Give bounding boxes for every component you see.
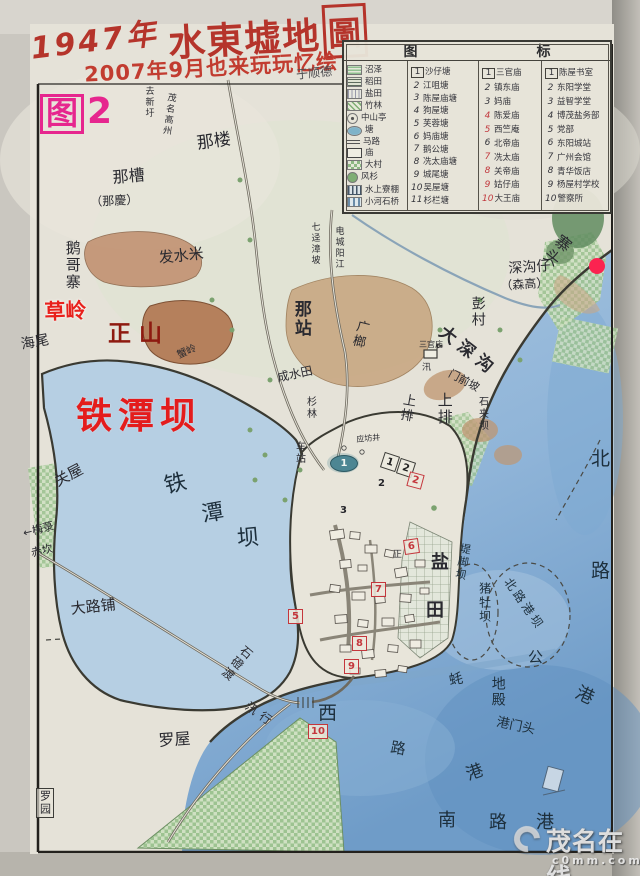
legend-item: 沼泽 xyxy=(347,65,406,75)
legend-item-number: 1 xyxy=(411,67,424,78)
legend-item-number: 5 xyxy=(482,126,493,135)
map-label: （那慶） xyxy=(90,193,139,208)
legend-item-label: 稻田 xyxy=(365,78,382,87)
map-label: 铁潭坝 xyxy=(76,398,202,436)
legend-header-left: 图 xyxy=(404,41,418,61)
legend-item-label: 城尾塘 xyxy=(423,171,449,180)
red-dot-marker xyxy=(589,258,605,274)
map-marker-red-7: 7 xyxy=(371,582,386,597)
map-label: 鹅哥寨 xyxy=(64,240,80,291)
legend-header-right: 标 xyxy=(537,41,551,61)
legend-item: 4博茂盐务部 xyxy=(545,112,609,121)
pavilion-symbol-icon xyxy=(347,113,358,124)
legend-item: 5芙蓉塘 xyxy=(411,120,477,129)
legend-item: 8关帝庙 xyxy=(482,167,540,176)
map-label: 那站 xyxy=(291,300,309,338)
legend-item: 3益智学堂 xyxy=(545,98,609,107)
map-label: 正山 xyxy=(108,322,170,346)
legend-item: 塘 xyxy=(347,126,406,136)
legend-item-label: 盐田 xyxy=(365,90,382,99)
legend-item-number: 6 xyxy=(482,139,493,148)
legend-item-number: 8 xyxy=(545,167,556,176)
legend-item-number: 7 xyxy=(482,153,493,162)
map-label: 南 xyxy=(438,812,456,831)
legend-item: 9城尾塘 xyxy=(411,171,477,180)
legend-item-label: 中山亭 xyxy=(361,114,387,123)
legend-item-label: 吴屋塘 xyxy=(424,184,450,193)
legend-item: 1陈屋书室 xyxy=(545,68,609,79)
legend-item-label: 西竺庵 xyxy=(494,126,520,135)
legend-item-number: 2 xyxy=(411,82,422,91)
legend-item: 4狗屋塘 xyxy=(411,107,477,116)
stilt-symbol-icon xyxy=(347,185,362,195)
legend-item-label: 博茂盐务部 xyxy=(557,112,600,121)
salt-symbol-icon xyxy=(347,89,362,99)
legend-item-number: 4 xyxy=(545,112,556,121)
legend-item: 1沙仔塘 xyxy=(411,67,477,78)
legend-item-label: 狗屋塘 xyxy=(423,107,449,116)
legend-item-label: 三官庙 xyxy=(496,69,522,78)
legend-item-number: 3 xyxy=(411,94,422,103)
legend-item: 盐田 xyxy=(347,89,406,99)
legend-item-number: 7 xyxy=(411,145,422,154)
map-label: 上排 xyxy=(436,392,452,426)
legend-item-label: 东阳学堂 xyxy=(557,84,591,93)
map-label: 路 xyxy=(489,814,507,833)
legend-item-number: 2 xyxy=(482,84,493,93)
legend-item-label: 塘 xyxy=(365,126,374,135)
legend-item-label: 镇东庙 xyxy=(494,84,520,93)
legend-ponds-column: 1沙仔塘2江咀塘3陈屋庙塘4狗屋塘5芙蓉塘6妈庙塘7鹅公塘8冼太庙塘9城尾塘10… xyxy=(407,61,478,211)
legend-item-label: 马路 xyxy=(363,138,380,147)
legend-item: 3妈庙 xyxy=(482,98,540,107)
legend-item-label: 东阳城站 xyxy=(557,140,591,149)
legend-item-number: 8 xyxy=(411,158,422,167)
legend-item-label: 风杉 xyxy=(361,173,378,182)
legend-item-label: 陈爱庙 xyxy=(494,112,520,121)
legend-item: 9杨屋村学校 xyxy=(545,181,609,190)
legend-item: 2镇东庙 xyxy=(482,84,540,93)
temple-symbol-icon xyxy=(347,148,362,158)
map-marker-pond1-1: 1 xyxy=(330,455,358,472)
map-label: 深沟仔 xyxy=(508,259,551,277)
legend-item-label: 沼泽 xyxy=(365,66,382,75)
map-label: 草岭 xyxy=(44,300,87,323)
legend-item-label: 冼太庙塘 xyxy=(423,158,457,167)
map-marker-plain-2: 2 xyxy=(378,478,385,489)
legend-symbols-column: 沼泽稻田盐田竹林中山亭塘马路庙大村风杉水上寮棚小河石桥 xyxy=(344,61,407,211)
legend-item-label: 杉栏塘 xyxy=(424,197,450,206)
map-label: 公 xyxy=(528,650,543,666)
map-marker-red-8: 8 xyxy=(352,636,367,651)
legend-item-label: 妈庙塘 xyxy=(423,133,449,142)
legend-item-number: 3 xyxy=(545,98,556,107)
marsh-symbol-icon xyxy=(347,65,362,75)
map-label: 车站 xyxy=(293,441,304,465)
map-label: 罗屋 xyxy=(158,731,191,750)
paddy-symbol-icon xyxy=(347,77,362,87)
map-label: 盐 xyxy=(431,554,449,573)
figure-number: 2 xyxy=(87,94,112,130)
figure-label: 图 xyxy=(40,94,84,134)
legend-item: 中山亭 xyxy=(347,113,406,124)
legend-item-number: 1 xyxy=(545,68,558,79)
legend-item-label: 关帝庙 xyxy=(494,168,520,177)
legend-item: 5党部 xyxy=(545,126,609,135)
legend-item: 水上寮棚 xyxy=(347,185,406,195)
legend-item: 1三官庙 xyxy=(482,68,540,79)
bridge-symbol-icon xyxy=(347,197,362,207)
legend-item: 6妈庙塘 xyxy=(411,133,477,142)
map-label: 去新圩 xyxy=(143,86,152,119)
map-label: 猪牡坝 xyxy=(478,582,491,624)
legend-item: 庙 xyxy=(347,148,406,158)
legend-item: 3陈屋庙塘 xyxy=(411,94,477,103)
legend-item: 4陈爱庙 xyxy=(482,112,540,121)
legend-item-number: 3 xyxy=(482,98,493,107)
map-label: 汛 xyxy=(422,364,431,373)
legend-item: 6东阳城站 xyxy=(545,139,609,148)
legend-item: 11杉栏塘 xyxy=(411,196,477,205)
legend-item: 小河石桥 xyxy=(347,197,406,207)
legend-item-label: 北帝庙 xyxy=(494,140,520,149)
legend-item-label: 广州会馆 xyxy=(557,154,591,163)
map-label: 路 xyxy=(389,740,407,758)
legend-item: 稻田 xyxy=(347,77,406,87)
legend-item: 7广州会馆 xyxy=(545,153,609,162)
legend-item-number: 9 xyxy=(411,171,422,180)
legend-item-label: 陈屋书室 xyxy=(559,69,593,78)
map-label: 那槽 xyxy=(112,167,145,187)
legend-item-number: 9 xyxy=(482,181,493,190)
legend-item-label: 小河石桥 xyxy=(365,198,399,207)
legend-item: 7冼太庙 xyxy=(482,153,540,162)
legend-item: 大村 xyxy=(347,160,406,170)
legend-item-number: 4 xyxy=(411,107,422,116)
map-label: 田 xyxy=(426,602,444,621)
map-marker-plain-3: 3 xyxy=(340,505,347,516)
legend-item-label: 青华饭店 xyxy=(557,168,591,177)
legend-item: 8青华饭店 xyxy=(545,167,609,176)
legend-item-label: 大王庙 xyxy=(494,195,520,204)
map-label: 罗园 xyxy=(36,788,54,818)
legend-item-number: 8 xyxy=(482,167,493,176)
legend-item-number: 7 xyxy=(545,153,556,162)
map-label: 蚝 xyxy=(448,672,464,689)
map-label: 潭 xyxy=(200,500,226,527)
legend-item-label: 益智学堂 xyxy=(557,98,591,107)
legend-item: 10警察所 xyxy=(545,195,609,204)
legend-item: 8冼太庙塘 xyxy=(411,158,477,167)
map-label: 彭村 xyxy=(470,296,485,328)
legend-item-label: 庙 xyxy=(365,149,374,158)
legend-item-number: 1 xyxy=(482,68,495,79)
map-label: 正 xyxy=(393,551,402,560)
map-label: 路 xyxy=(591,562,610,582)
map-label: 坝 xyxy=(236,526,260,551)
map-marker-red-6: 6 xyxy=(403,538,420,555)
legend-item: 6北帝庙 xyxy=(482,139,540,148)
map-label: 地殿 xyxy=(490,676,505,708)
legend-item-label: 妈庙 xyxy=(494,98,511,107)
legend-item-number: 10 xyxy=(411,184,422,193)
map-marker-red-10: 10 xyxy=(308,724,328,739)
legend-item-number: 9 xyxy=(545,181,556,190)
legend-item-label: 江咀塘 xyxy=(423,82,449,91)
legend-item: 10吴屋塘 xyxy=(411,184,477,193)
map-label: 杉林 xyxy=(304,396,315,420)
legend-item-label: 大村 xyxy=(365,161,382,170)
legend-item: 2江咀塘 xyxy=(411,82,477,91)
pond-symbol-icon xyxy=(347,126,362,136)
legend-item-label: 警察所 xyxy=(558,195,584,204)
legend-item: 竹林 xyxy=(347,101,406,111)
legend-item-label: 水上寮棚 xyxy=(365,186,399,195)
legend-item: 风杉 xyxy=(347,172,406,183)
legend-item-number: 2 xyxy=(545,84,556,93)
map-label: 西 xyxy=(318,704,337,724)
legend-item-number: 4 xyxy=(482,112,493,121)
legend-item: 7鹅公塘 xyxy=(411,145,477,154)
fir-symbol-icon xyxy=(347,172,358,183)
map-marker-red-9: 9 xyxy=(344,659,359,674)
legend-item-number: 5 xyxy=(545,126,556,135)
village-symbol-icon xyxy=(347,160,362,170)
legend-item-number: 6 xyxy=(411,133,422,142)
legend-item: 马路 xyxy=(347,138,406,147)
map-label: 石夹坝 xyxy=(476,396,487,432)
legend-buildings-column: 1陈屋书室2东阳学堂3益智学堂4博茂盐务部5党部6东阳城站7广州会馆8青华饭店9… xyxy=(541,61,610,211)
legend-item-label: 杨屋村学校 xyxy=(557,181,600,190)
legend-item-label: 鹅公塘 xyxy=(423,146,449,155)
watermark-site-name: 茂名在线 xyxy=(546,822,640,876)
legend-item-number: 6 xyxy=(545,139,556,148)
legend-item-label: 沙仔塘 xyxy=(425,68,451,77)
legend-item-label: 姑仔庙 xyxy=(494,181,520,190)
legend-item-number: 11 xyxy=(411,196,422,205)
legend-box: 图 标 沼泽稻田盐田竹林中山亭塘马路庙大村风杉水上寮棚小河石桥 1沙仔塘2江咀塘… xyxy=(342,40,612,214)
legend-temples-column: 1三官庙2镇东庙3妈庙4陈爱庙5西竺庵6北帝庙7冼太庙8关帝庙9姑仔庙10大王庙 xyxy=(478,61,541,211)
bamboo-symbol-icon xyxy=(347,101,362,111)
legend-item-label: 冼太庙 xyxy=(494,154,520,163)
legend-item-number: 10 xyxy=(482,195,493,204)
legend-item-label: 党部 xyxy=(557,126,574,135)
legend-item-label: 芙蓉塘 xyxy=(423,120,449,129)
legend-item: 5西竺庵 xyxy=(482,126,540,135)
road-symbol-icon xyxy=(347,138,360,146)
legend-item-number: 5 xyxy=(411,120,422,129)
map-photo: 1947年 水東墟地 圖 2007年9月也来玩玩忆绘 于顺德 图 2 图 标 沼… xyxy=(0,0,640,876)
legend-body: 沼泽稻田盐田竹林中山亭塘马路庙大村风杉水上寮棚小河石桥 1沙仔塘2江咀塘3陈屋庙… xyxy=(344,61,610,211)
legend-item: 2东阳学堂 xyxy=(545,84,609,93)
legend-item: 10大王庙 xyxy=(482,195,540,204)
legend-item: 9姑仔庙 xyxy=(482,181,540,190)
map-label: 三官庙 xyxy=(419,341,443,349)
map-marker-red-5: 5 xyxy=(288,609,303,624)
legend-item-label: 陈屋庙塘 xyxy=(423,95,457,104)
legend-item-label: 竹林 xyxy=(365,102,382,111)
map-label: 七迳漳坡 xyxy=(309,222,318,266)
map-label: 电城阳江 xyxy=(333,226,342,270)
legend-item-number: 10 xyxy=(545,195,556,204)
legend-header: 图 标 xyxy=(344,42,610,61)
watermark-domain: c0mm.com xyxy=(552,854,640,867)
map-label: 北 xyxy=(591,450,610,470)
figure-tag: 图 2 xyxy=(40,94,112,134)
